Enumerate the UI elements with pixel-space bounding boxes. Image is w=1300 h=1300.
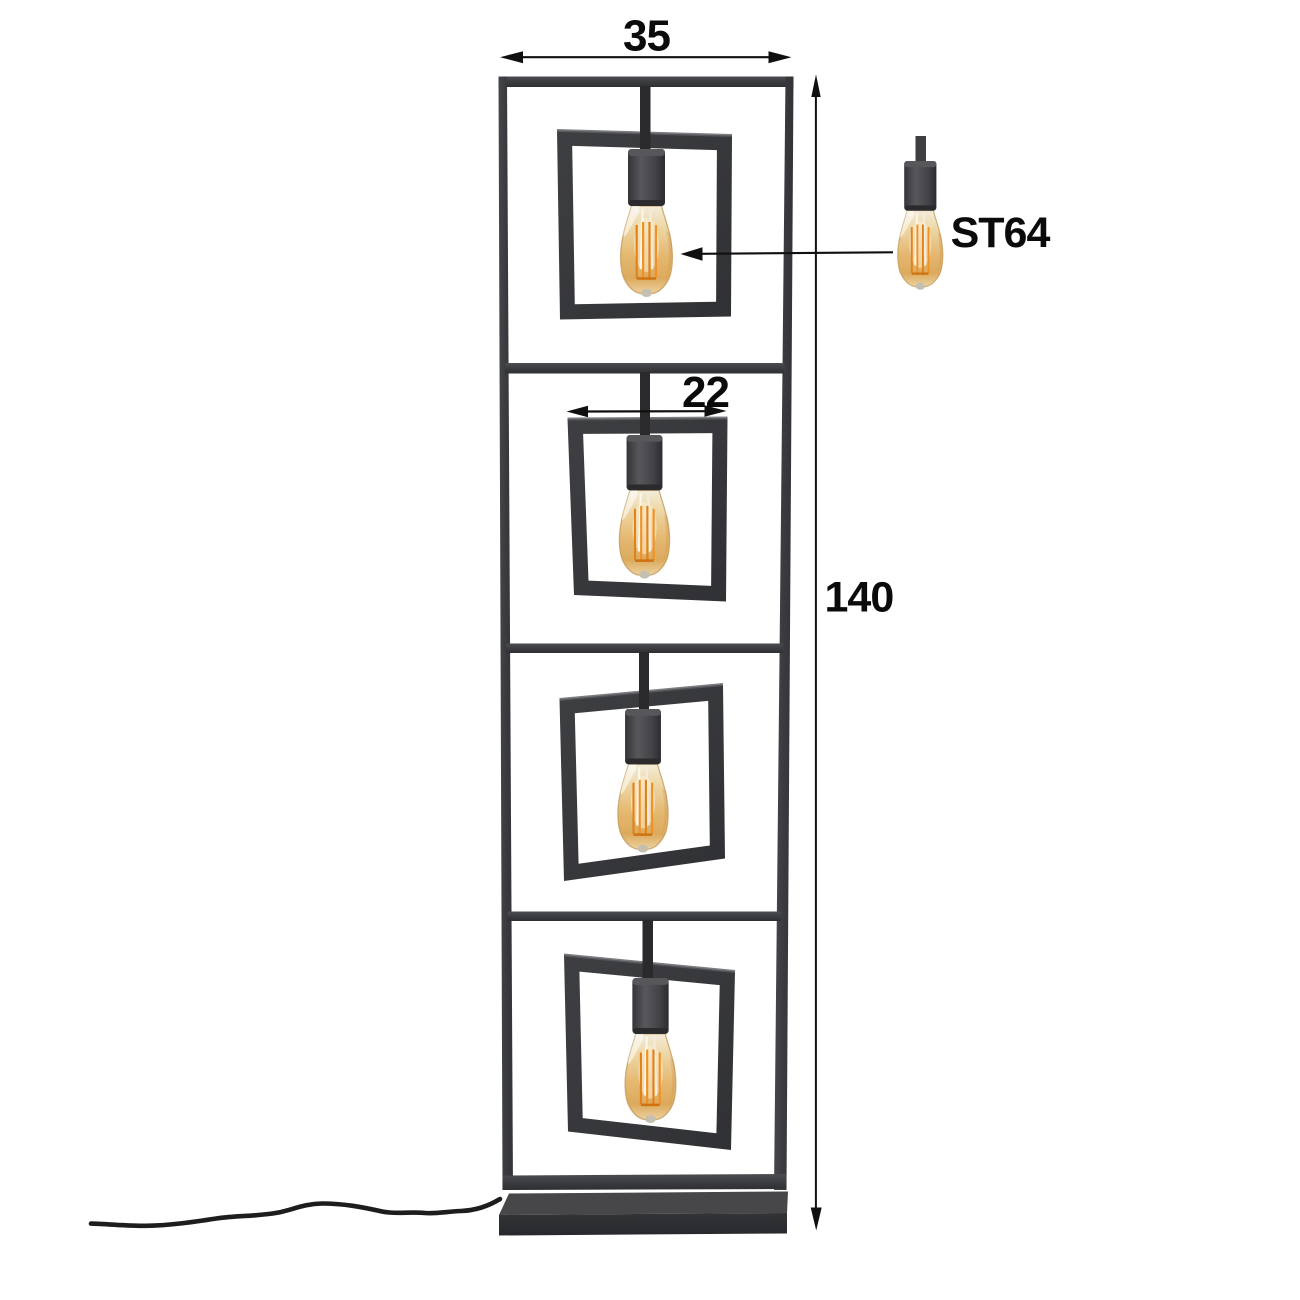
svg-text:35: 35 [623, 12, 670, 61]
svg-text:ST64: ST64 [951, 209, 1051, 257]
svg-text:140: 140 [825, 574, 894, 622]
